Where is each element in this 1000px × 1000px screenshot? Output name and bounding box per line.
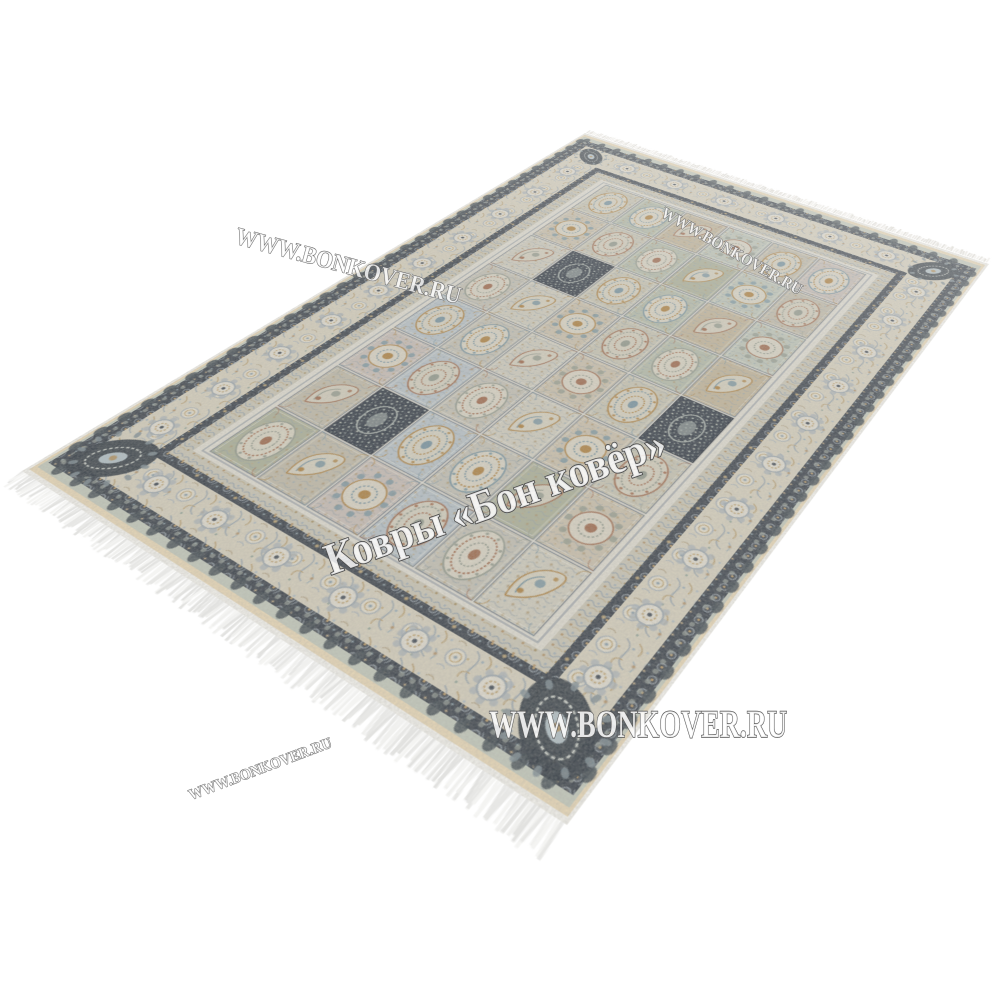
svg-text:WWW.BONKOVER.RU: WWW.BONKOVER.RU	[489, 704, 787, 747]
svg-text:WWW.BONKOVER.RU: WWW.BONKOVER.RU	[658, 204, 805, 298]
svg-text:WWW.BONKOVER.RU: WWW.BONKOVER.RU	[233, 222, 465, 309]
svg-text:Ковры «Бон ковёр»: Ковры «Бон ковёр»	[318, 418, 672, 585]
svg-text:WWW.BONKOVER.RU: WWW.BONKOVER.RU	[187, 735, 335, 804]
